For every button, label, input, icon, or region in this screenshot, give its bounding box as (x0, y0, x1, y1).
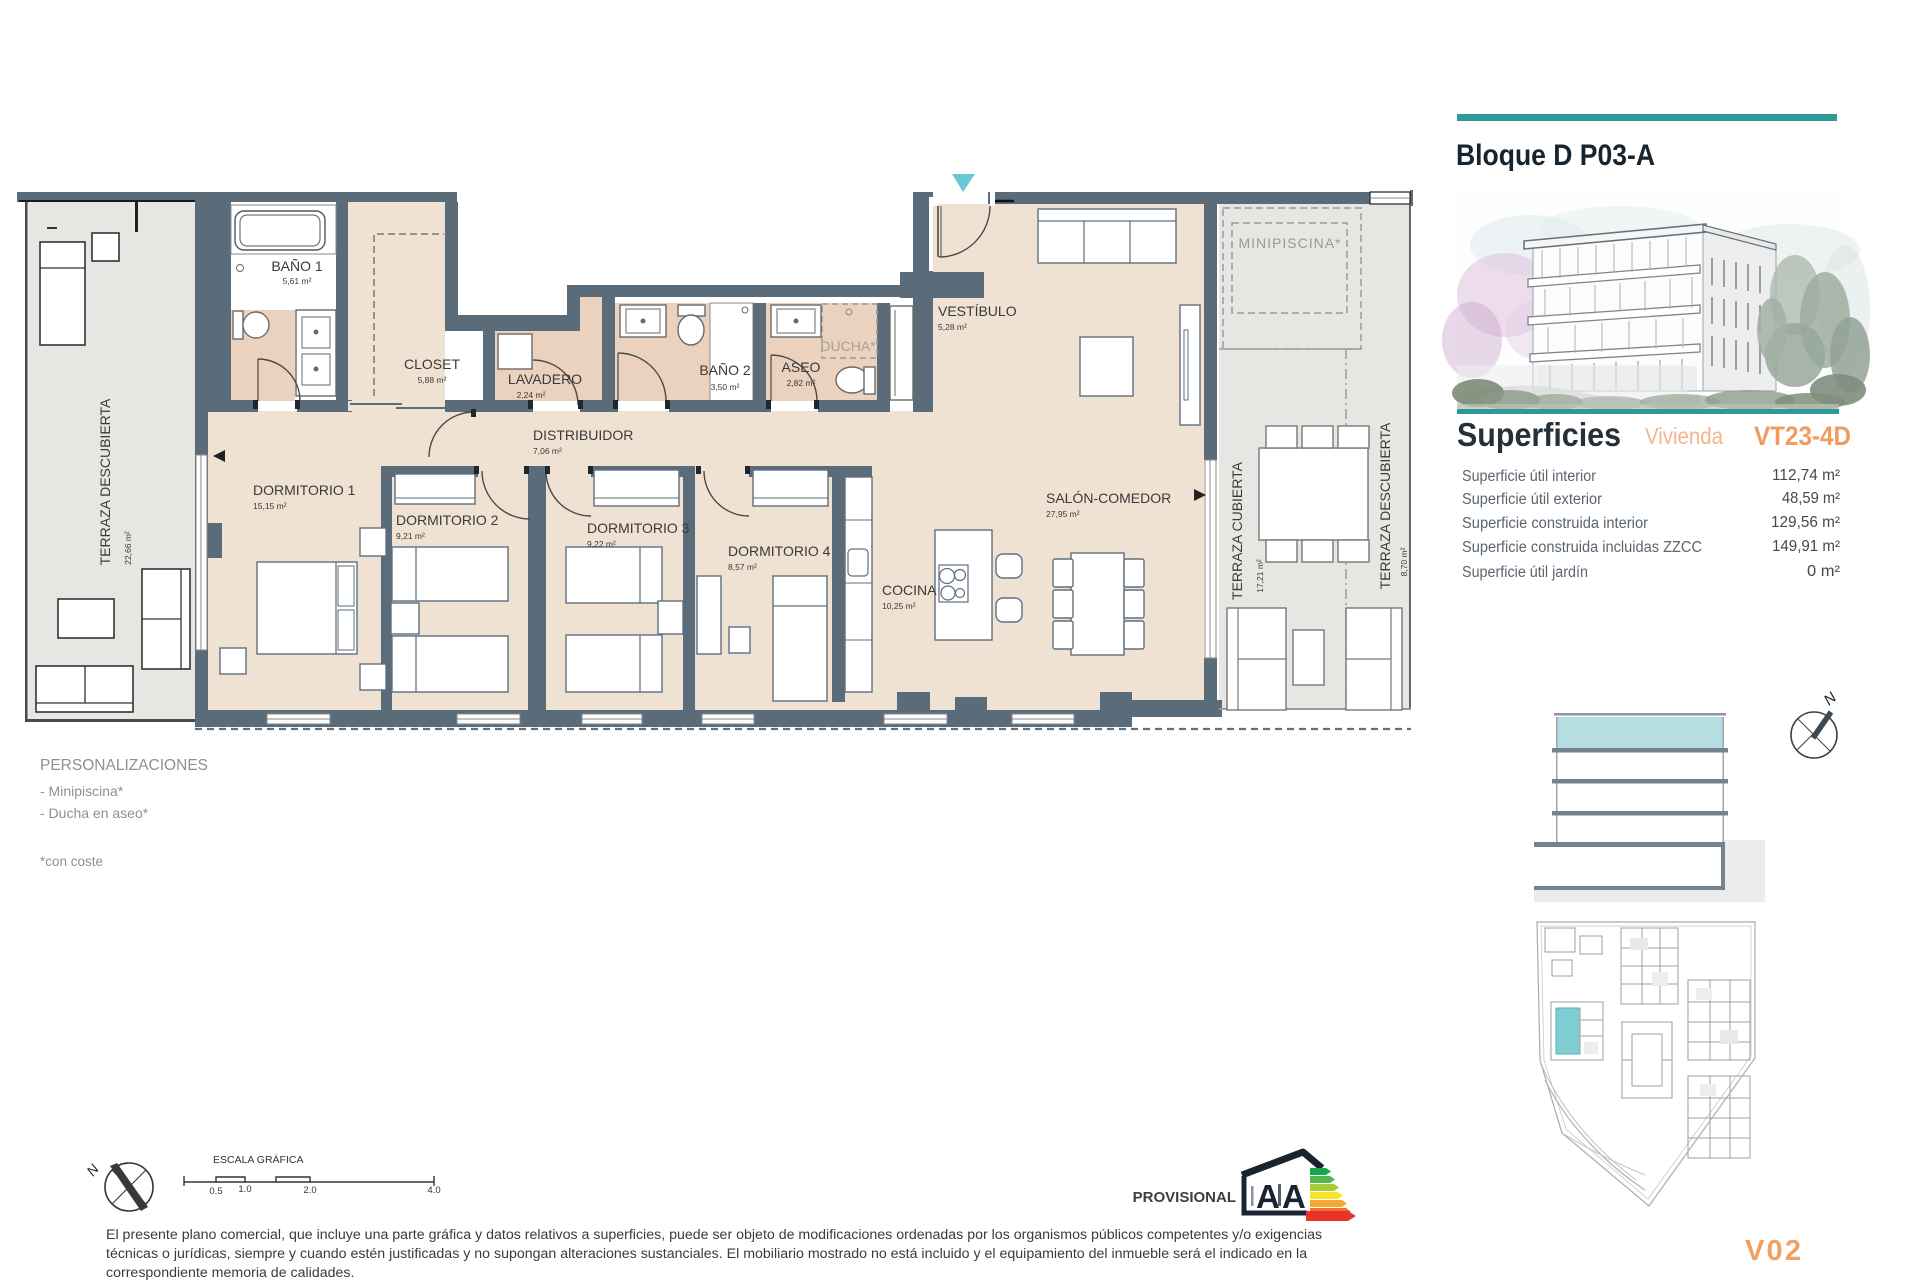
svg-text:V02: V02 (1745, 1235, 1801, 1267)
svg-text:VT23-4D: VT23-4D (1754, 421, 1851, 451)
svg-text:Superficies: Superficies (1457, 416, 1621, 453)
svg-text:8,70 m²: 8,70 m² (1399, 547, 1409, 576)
svg-text:DORMITORIO 2: DORMITORIO 2 (396, 512, 499, 528)
svg-text:COCINA: COCINA (882, 582, 937, 598)
svg-text:A: A (1256, 1178, 1280, 1215)
svg-text:DORMITORIO 1: DORMITORIO 1 (253, 482, 356, 498)
svg-text:PROVISIONAL: PROVISIONAL (1133, 1189, 1236, 1206)
svg-text:2,82 m²: 2,82 m² (787, 378, 816, 388)
svg-text:112,74 m²: 112,74 m² (1772, 467, 1840, 484)
svg-text:El presente plano comercial, q: El presente plano comercial, que incluye… (106, 1227, 1322, 1243)
svg-text:VESTÍBULO: VESTÍBULO (938, 303, 1017, 319)
svg-text:Superficie construida incluida: Superficie construida incluidas ZZCC (1462, 539, 1702, 556)
svg-text:0 m²: 0 m² (1807, 563, 1840, 580)
svg-text:5,88 m²: 5,88 m² (418, 375, 447, 385)
svg-text:ESCALA GRÁFICA: ESCALA GRÁFICA (213, 1153, 303, 1166)
svg-text:Superficie útil exterior: Superficie útil exterior (1462, 491, 1602, 508)
svg-text:4.0: 4.0 (427, 1185, 440, 1196)
svg-text:*con coste: *con coste (40, 854, 103, 869)
svg-text:DUCHA*: DUCHA* (820, 338, 876, 354)
svg-text:- Minipiscina*: - Minipiscina* (40, 783, 124, 799)
svg-text:Vivienda: Vivienda (1645, 423, 1723, 449)
svg-text:TERRAZA DESCUBIERTA: TERRAZA DESCUBIERTA (1377, 422, 1393, 589)
svg-text:DISTRIBUIDOR: DISTRIBUIDOR (533, 427, 633, 443)
svg-text:DORMITORIO 3: DORMITORIO 3 (587, 520, 690, 536)
svg-text:8,57 m²: 8,57 m² (728, 562, 757, 572)
svg-text:SALÓN-COMEDOR: SALÓN-COMEDOR (1046, 490, 1171, 506)
svg-text:15,15 m²: 15,15 m² (253, 501, 287, 511)
svg-text:PERSONALIZACIONES: PERSONALIZACIONES (40, 757, 208, 774)
svg-text:TERRAZA DESCUBIERTA: TERRAZA DESCUBIERTA (97, 398, 113, 565)
svg-text:7,06 m²: 7,06 m² (533, 446, 562, 456)
svg-text:CLOSET: CLOSET (404, 356, 460, 372)
svg-text:ASEO: ASEO (782, 359, 821, 375)
svg-text:9,21 m²: 9,21 m² (396, 531, 425, 541)
svg-text:10,25 m²: 10,25 m² (882, 601, 916, 611)
svg-text:DORMITORIO 4: DORMITORIO 4 (728, 543, 831, 559)
svg-text:correspondiente memoria de cal: correspondiente memoria de calidades. (106, 1265, 354, 1280)
svg-text:MINIPISCINA*: MINIPISCINA* (1238, 235, 1341, 251)
svg-text:0.5: 0.5 (209, 1186, 222, 1197)
svg-text:técnicas o jurídicas, siempre: técnicas o jurídicas, siempre y cuando e… (106, 1246, 1307, 1262)
svg-text:2.0: 2.0 (303, 1185, 316, 1196)
svg-text:Superficie construida interior: Superficie construida interior (1462, 515, 1648, 532)
svg-text:BAÑO 2: BAÑO 2 (699, 362, 751, 378)
svg-text:Superficie útil jardín: Superficie útil jardín (1462, 564, 1588, 581)
svg-text:22,66 m²: 22,66 m² (123, 531, 133, 565)
svg-text:LAVADERO: LAVADERO (508, 371, 582, 387)
svg-text:5,28 m²: 5,28 m² (938, 322, 967, 332)
svg-text:- Ducha en aseo*: - Ducha en aseo* (40, 805, 149, 821)
svg-text:27,95 m²: 27,95 m² (1046, 509, 1080, 519)
svg-text:149,91 m²: 149,91 m² (1772, 538, 1840, 555)
svg-text:BAÑO 1: BAÑO 1 (271, 258, 323, 274)
svg-text:3,50 m²: 3,50 m² (711, 382, 740, 392)
svg-text:A: A (1282, 1178, 1306, 1215)
svg-text:5,61 m²: 5,61 m² (283, 276, 312, 286)
svg-text:129,56 m²: 129,56 m² (1771, 514, 1840, 531)
svg-text:TERRAZA CUBIERTA: TERRAZA CUBIERTA (1229, 461, 1245, 600)
svg-text:48,59 m²: 48,59 m² (1782, 490, 1840, 507)
svg-text:Superficie útil interior: Superficie útil interior (1462, 468, 1596, 485)
svg-text:Bloque D P03-A: Bloque D P03-A (1456, 139, 1655, 172)
svg-text:17,21 m²: 17,21 m² (1255, 559, 1265, 593)
svg-text:9,22 m²: 9,22 m² (587, 539, 616, 549)
svg-text:1.0: 1.0 (238, 1184, 251, 1195)
svg-text:2,24 m²: 2,24 m² (517, 390, 546, 400)
